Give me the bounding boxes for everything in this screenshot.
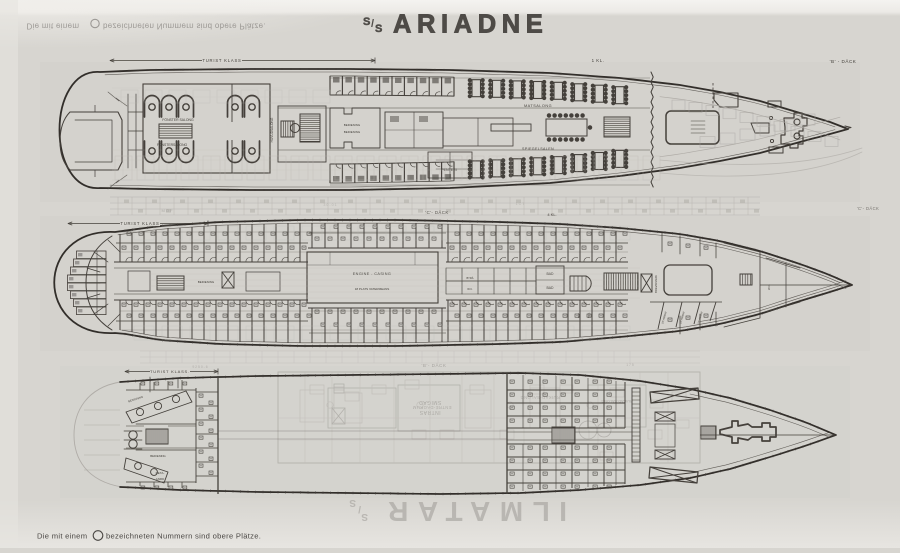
svg-text:FÖNSTERSALONG: FÖNSTERSALONG [157, 143, 188, 147]
svg-text:/: / [371, 18, 374, 30]
svg-text:1 KL.: 1 KL. [592, 58, 605, 63]
svg-text:S: S [375, 23, 382, 35]
svg-text:BREVKIVNAK: BREVKIVNAK [654, 275, 658, 293]
svg-text:'C'- DÄCK: 'C'- DÄCK [857, 206, 879, 211]
svg-text:DETA-: DETA- [156, 471, 165, 475]
svg-text:4 KL.: 4 KL. [547, 212, 556, 217]
svg-text:HUVUDSALONG: HUVUDSALONG [270, 117, 274, 142]
svg-text:ARIADNE: ARIADNE [393, 11, 548, 39]
svg-text:S: S [363, 16, 370, 28]
svg-text:bezeichneten Nummern sind ober: bezeichneten Nummern sind obere Plätze. [103, 22, 266, 31]
svg-text:TURIST KLASS: TURIST KLASS [120, 221, 159, 226]
svg-text:W.C.: W.C. [587, 312, 591, 318]
svg-text:ILMATAR: ILMATAR [379, 496, 567, 527]
svg-text:bezeichneten Nummern sind ober: bezeichneten Nummern sind obere Plätze. [106, 532, 261, 541]
svg-text:RUIKAD-SALONG: RUIKAD-SALONG [601, 399, 632, 403]
svg-text:ANRD: ANRD [156, 477, 165, 481]
svg-text:S: S [361, 511, 368, 522]
svg-text:TURIST KLASS.: TURIST KLASS. [150, 369, 190, 374]
svg-text:S: S [349, 497, 356, 508]
svg-text:MATSALONG: MATSALONG [524, 104, 552, 108]
svg-text:18 PLATS VATERMEANS: 18 PLATS VATERMEANS [355, 287, 390, 291]
svg-text:TURIST KLASS: TURIST KLASS [202, 58, 241, 63]
svg-text:FÖNSTER SALONG: FÖNSTER SALONG [162, 118, 194, 122]
svg-text:BAD: BAD [547, 286, 555, 290]
svg-text:'B' - DÄCK: 'B' - DÄCK [830, 58, 857, 64]
svg-text:W.C.: W.C. [467, 287, 473, 291]
svg-text:M O F: M O F [161, 208, 173, 213]
svg-text:9 2 5 0 - 6: 9 2 5 0 - 6 [192, 365, 207, 369]
svg-text:BEDIENING: BEDIENING [344, 123, 361, 127]
svg-text:BEDIENING: BEDIENING [150, 454, 165, 458]
svg-text:'C'- DÄCK: 'C'- DÄCK [425, 210, 448, 215]
svg-text:ENTRÉ-DAGRUM: ENTRÉ-DAGRUM [412, 405, 451, 410]
svg-text:SPIEGELSALEN: SPIEGELSALEN [522, 147, 554, 151]
svg-text:BEDIENING: BEDIENING [198, 280, 215, 284]
svg-text:3 0 - 0 1: 3 0 - 0 1 [323, 203, 336, 207]
svg-text:W.C.: W.C. [577, 312, 581, 318]
svg-text:BEDIENING: BEDIENING [344, 130, 361, 134]
svg-text:Die mit einem: Die mit einem [37, 532, 87, 541]
svg-text:'B'- DÄCK: 'B'- DÄCK [422, 362, 447, 368]
svg-text:Die mit einem: Die mit einem [27, 22, 80, 31]
svg-text:1 C T: 1 C T [516, 202, 526, 206]
svg-text:1 7 5: 1 7 5 [626, 363, 634, 367]
svg-text:/: / [358, 503, 361, 514]
